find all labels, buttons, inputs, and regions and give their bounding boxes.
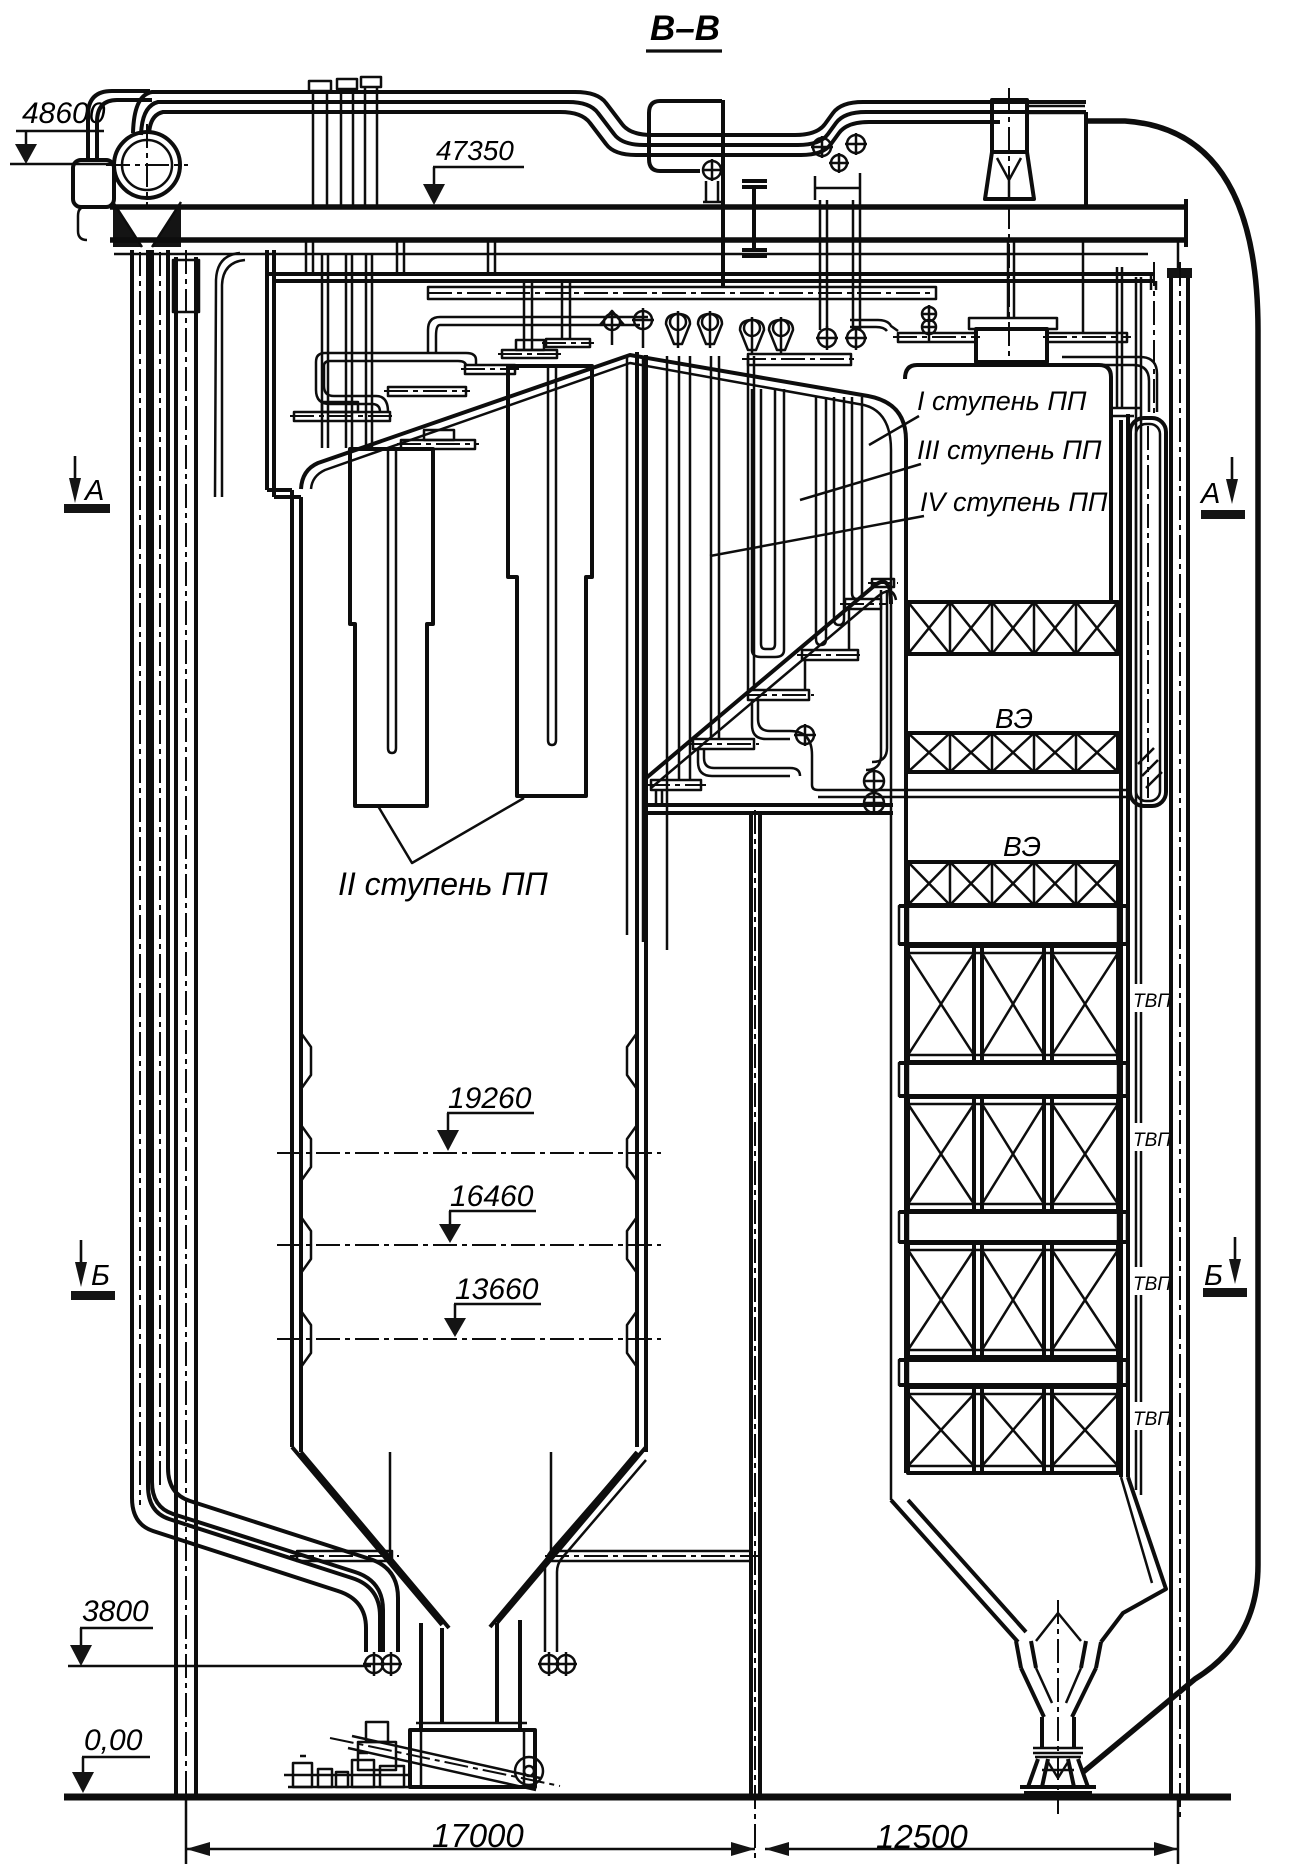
svg-text:ТВП: ТВП [1133,1409,1171,1430]
svg-text:12500: 12500 [876,1818,968,1855]
svg-text:А: А [83,475,104,507]
svg-text:47350: 47350 [436,135,514,166]
svg-text:IV ступень ПП: IV ступень ПП [920,487,1108,517]
svg-text:ВЭ: ВЭ [995,703,1033,734]
svg-text:I ступень ПП: I ступень ПП [917,386,1087,416]
svg-text:ТВП: ТВП [1133,991,1171,1012]
svg-text:17000: 17000 [432,1817,524,1854]
svg-text:13660: 13660 [455,1273,539,1306]
svg-text:48600: 48600 [22,97,106,130]
svg-text:В–В: В–В [650,9,720,48]
svg-text:Б: Б [91,1260,110,1292]
svg-text:ТВП: ТВП [1133,1274,1171,1295]
svg-text:ТВП: ТВП [1133,1130,1171,1151]
svg-text:3800: 3800 [82,1595,149,1628]
svg-text:ВЭ: ВЭ [1003,831,1041,862]
svg-text:III ступень ПП: III ступень ПП [917,435,1102,465]
svg-text:II ступень ПП: II ступень ПП [338,866,549,902]
svg-text:16460: 16460 [450,1180,534,1213]
svg-text:А: А [1199,478,1220,510]
svg-text:19260: 19260 [448,1082,532,1115]
svg-text:Б: Б [1204,1260,1223,1292]
svg-text:0,00: 0,00 [84,1724,143,1757]
